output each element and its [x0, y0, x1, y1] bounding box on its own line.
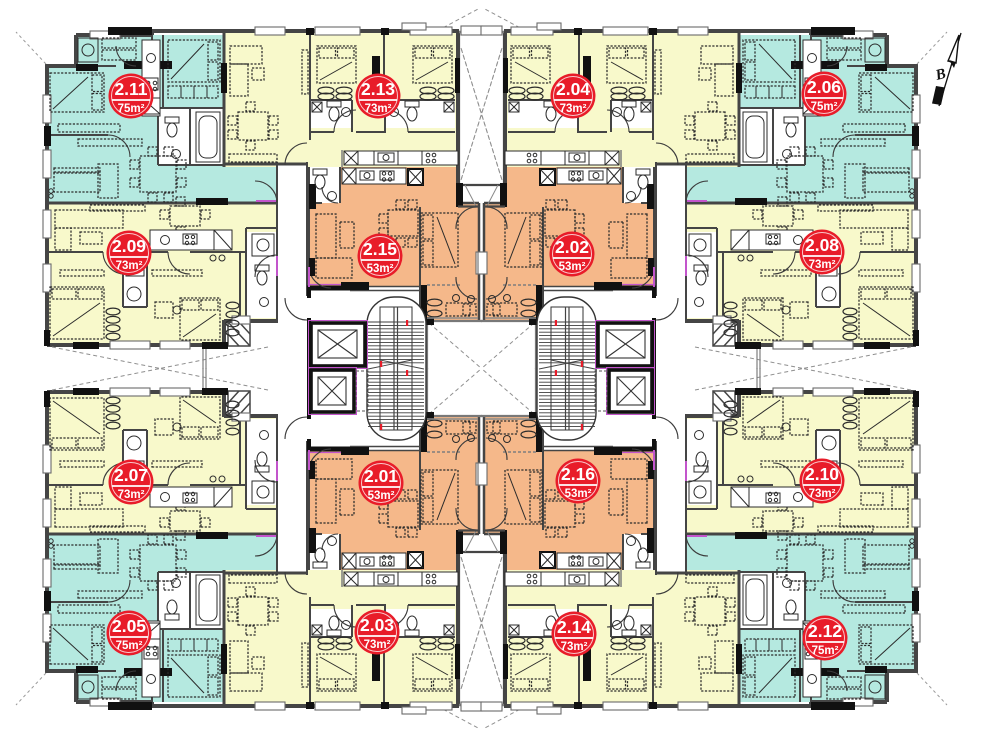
- svg-text:73m²: 73m²: [809, 259, 836, 271]
- svg-text:2.01: 2.01: [364, 466, 398, 486]
- svg-text:75m²: 75m²: [118, 103, 145, 115]
- svg-text:2.05: 2.05: [112, 616, 146, 636]
- svg-text:75m²: 75m²: [812, 645, 839, 657]
- svg-text:73m²: 73m²: [118, 489, 145, 501]
- svg-text:75m²: 75m²: [811, 101, 838, 113]
- svg-text:2.09: 2.09: [112, 236, 146, 256]
- svg-text:2.08: 2.08: [805, 235, 839, 255]
- svg-text:2.02: 2.02: [555, 237, 589, 257]
- svg-text:75m²: 75m²: [116, 640, 143, 652]
- svg-text:73m²: 73m²: [809, 488, 836, 500]
- svg-text:2.04: 2.04: [556, 79, 590, 99]
- svg-text:53m²: 53m²: [368, 490, 395, 502]
- svg-text:53m²: 53m²: [559, 261, 586, 273]
- svg-text:2.14: 2.14: [557, 617, 591, 637]
- svg-text:2.12: 2.12: [808, 621, 842, 641]
- svg-text:2.15: 2.15: [363, 239, 397, 259]
- svg-text:2.06: 2.06: [807, 77, 841, 97]
- svg-text:73m²: 73m²: [364, 639, 391, 651]
- svg-text:2.16: 2.16: [561, 464, 595, 484]
- svg-text:73m²: 73m²: [561, 641, 588, 653]
- svg-text:2.13: 2.13: [361, 79, 395, 99]
- svg-text:2.11: 2.11: [114, 79, 147, 99]
- svg-text:73m²: 73m²: [116, 260, 143, 272]
- svg-text:73m²: 73m²: [365, 103, 392, 115]
- svg-text:2.03: 2.03: [360, 615, 394, 635]
- svg-text:53m²: 53m²: [565, 488, 592, 500]
- svg-text:2.10: 2.10: [805, 464, 839, 484]
- svg-text:2.07: 2.07: [114, 465, 148, 485]
- svg-text:73m²: 73m²: [560, 103, 587, 115]
- svg-text:53m²: 53m²: [367, 263, 394, 275]
